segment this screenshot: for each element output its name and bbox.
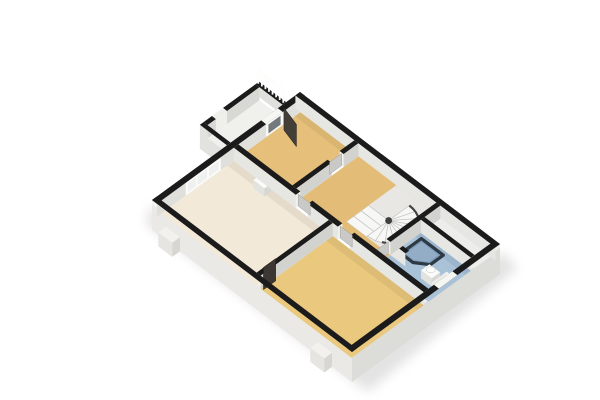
- stair-newel: [385, 217, 392, 224]
- floorplan-scene: [0, 0, 600, 400]
- floorplan-3d-render: [0, 0, 600, 400]
- toilet-seat: [426, 267, 435, 273]
